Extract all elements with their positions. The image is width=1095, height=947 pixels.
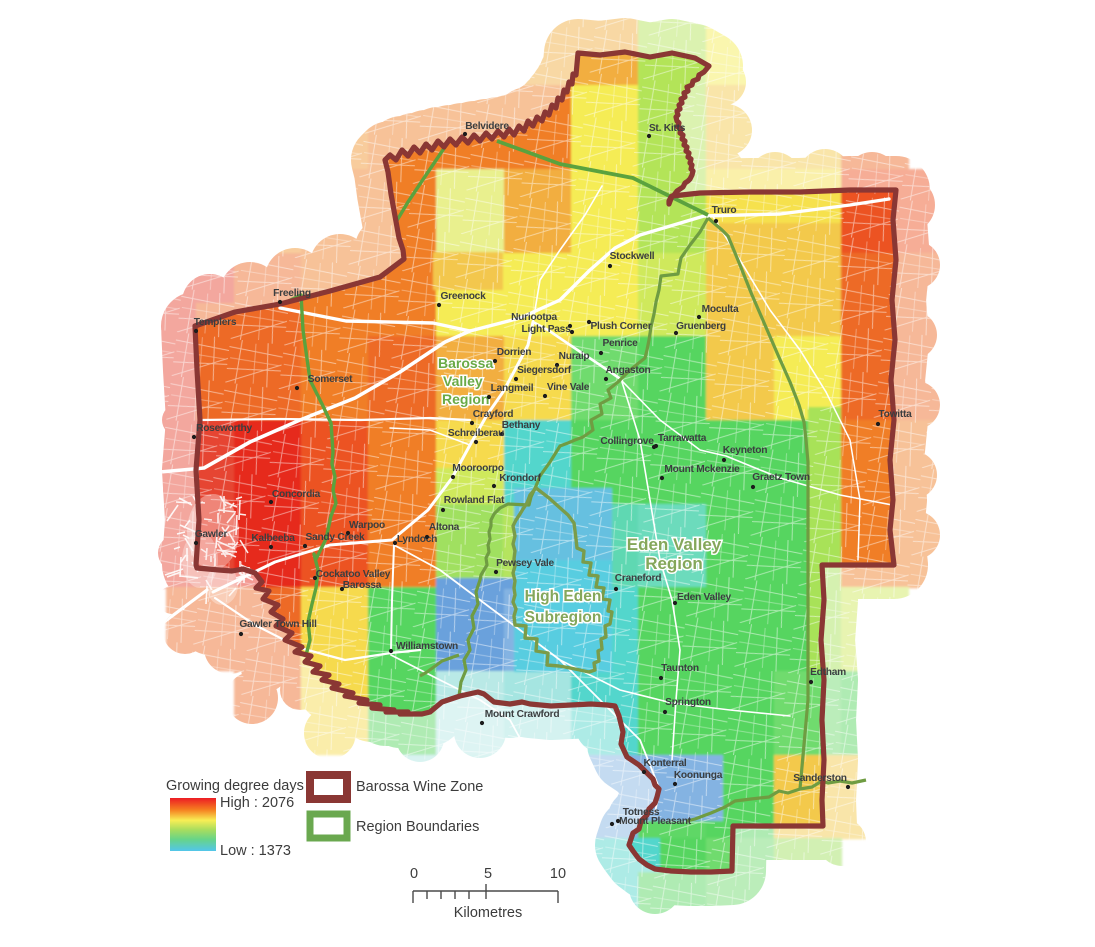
- svg-text:Valley: Valley: [443, 373, 483, 389]
- svg-text:Mount Mckenzie: Mount Mckenzie: [664, 464, 740, 475]
- svg-text:High Eden: High Eden: [525, 588, 602, 605]
- svg-text:Eden Valley: Eden Valley: [677, 592, 731, 603]
- svg-text:Gruenberg: Gruenberg: [676, 321, 726, 332]
- svg-text:St. Kitts: St. Kitts: [649, 123, 686, 134]
- svg-text:Light Pass: Light Pass: [521, 324, 571, 335]
- svg-text:Mooroorpo: Mooroorpo: [452, 463, 504, 474]
- svg-text:Barossa: Barossa: [438, 355, 493, 371]
- svg-text:Nuraip: Nuraip: [559, 351, 590, 362]
- svg-text:Rowland Flat: Rowland Flat: [444, 495, 505, 506]
- svg-text:Freeling: Freeling: [273, 288, 311, 299]
- svg-text:Barossa: Barossa: [343, 580, 382, 591]
- svg-text:Konterral: Konterral: [643, 758, 686, 769]
- svg-text:Schreiberau: Schreiberau: [448, 428, 504, 439]
- svg-text:Pewsey Vale: Pewsey Vale: [496, 558, 554, 569]
- svg-text:Truro: Truro: [712, 205, 737, 216]
- svg-text:Collingrove: Collingrove: [600, 436, 654, 447]
- svg-text:Vine Vale: Vine Vale: [547, 382, 590, 393]
- svg-text:Nuriootpa: Nuriootpa: [511, 312, 557, 323]
- svg-text:Edtham: Edtham: [810, 667, 846, 678]
- svg-text:Belvidere: Belvidere: [465, 121, 509, 132]
- svg-text:Siegersdorf: Siegersdorf: [517, 365, 572, 376]
- svg-text:Penrice: Penrice: [602, 338, 638, 349]
- svg-text:Springton: Springton: [665, 697, 711, 708]
- svg-text:Tarrawatta: Tarrawatta: [658, 433, 707, 444]
- svg-text:Barossa Wine Zone: Barossa Wine Zone: [356, 779, 483, 795]
- svg-text:Taunton: Taunton: [661, 663, 699, 674]
- svg-text:Region: Region: [645, 554, 703, 573]
- svg-text:Lyndoch: Lyndoch: [397, 534, 437, 545]
- svg-text:Stockwell: Stockwell: [610, 251, 655, 262]
- svg-text:Cockatoo Valley: Cockatoo Valley: [316, 569, 391, 580]
- svg-text:Dorrien: Dorrien: [497, 347, 532, 358]
- svg-text:Crayford: Crayford: [473, 409, 513, 420]
- svg-text:Templers: Templers: [194, 317, 237, 328]
- svg-text:Kalbeeba: Kalbeeba: [251, 533, 295, 544]
- svg-text:Graetz Town: Graetz Town: [752, 472, 810, 483]
- svg-text:5: 5: [484, 866, 492, 882]
- svg-text:High : 2076: High : 2076: [220, 795, 294, 811]
- svg-text:Sanderston: Sanderston: [793, 773, 847, 784]
- svg-text:Kilometres: Kilometres: [454, 905, 523, 921]
- svg-text:Greenock: Greenock: [441, 291, 487, 302]
- svg-text:Krondorf: Krondorf: [499, 473, 541, 484]
- svg-text:Region: Region: [442, 391, 489, 407]
- svg-text:Region Boundaries: Region Boundaries: [356, 819, 479, 835]
- svg-text:Moculta: Moculta: [702, 304, 739, 315]
- svg-text:Sandy Creek: Sandy Creek: [306, 532, 366, 543]
- svg-text:Eden Valley: Eden Valley: [627, 535, 722, 554]
- svg-text:Koonunga: Koonunga: [674, 770, 723, 781]
- svg-text:Concordia: Concordia: [272, 489, 321, 500]
- svg-text:Mount Pleasant: Mount Pleasant: [619, 816, 692, 827]
- svg-text:Subregion: Subregion: [525, 609, 602, 626]
- svg-text:Keyneton: Keyneton: [723, 445, 767, 456]
- svg-text:Williamstown: Williamstown: [396, 641, 458, 652]
- svg-text:Angaston: Angaston: [606, 365, 651, 376]
- svg-text:Bethany: Bethany: [502, 420, 541, 431]
- svg-text:Craneford: Craneford: [615, 573, 661, 584]
- svg-text:Warpoo: Warpoo: [349, 520, 385, 531]
- svg-text:Low : 1373: Low : 1373: [220, 843, 291, 859]
- svg-text:Plush Corner: Plush Corner: [591, 321, 652, 332]
- svg-text:Langmeil: Langmeil: [491, 383, 534, 394]
- svg-text:Mount Crawford: Mount Crawford: [485, 709, 560, 720]
- svg-text:Growing degree days: Growing degree days: [166, 778, 304, 794]
- svg-text:Somerset: Somerset: [308, 374, 353, 385]
- svg-text:Altona: Altona: [429, 522, 460, 533]
- svg-text:0: 0: [410, 866, 418, 882]
- svg-text:Gawler Town Hill: Gawler Town Hill: [239, 619, 317, 630]
- svg-text:Gawler: Gawler: [195, 529, 228, 540]
- svg-text:10: 10: [550, 866, 566, 882]
- svg-text:Towitta: Towitta: [878, 409, 912, 420]
- svg-text:Roseworthy: Roseworthy: [196, 423, 252, 434]
